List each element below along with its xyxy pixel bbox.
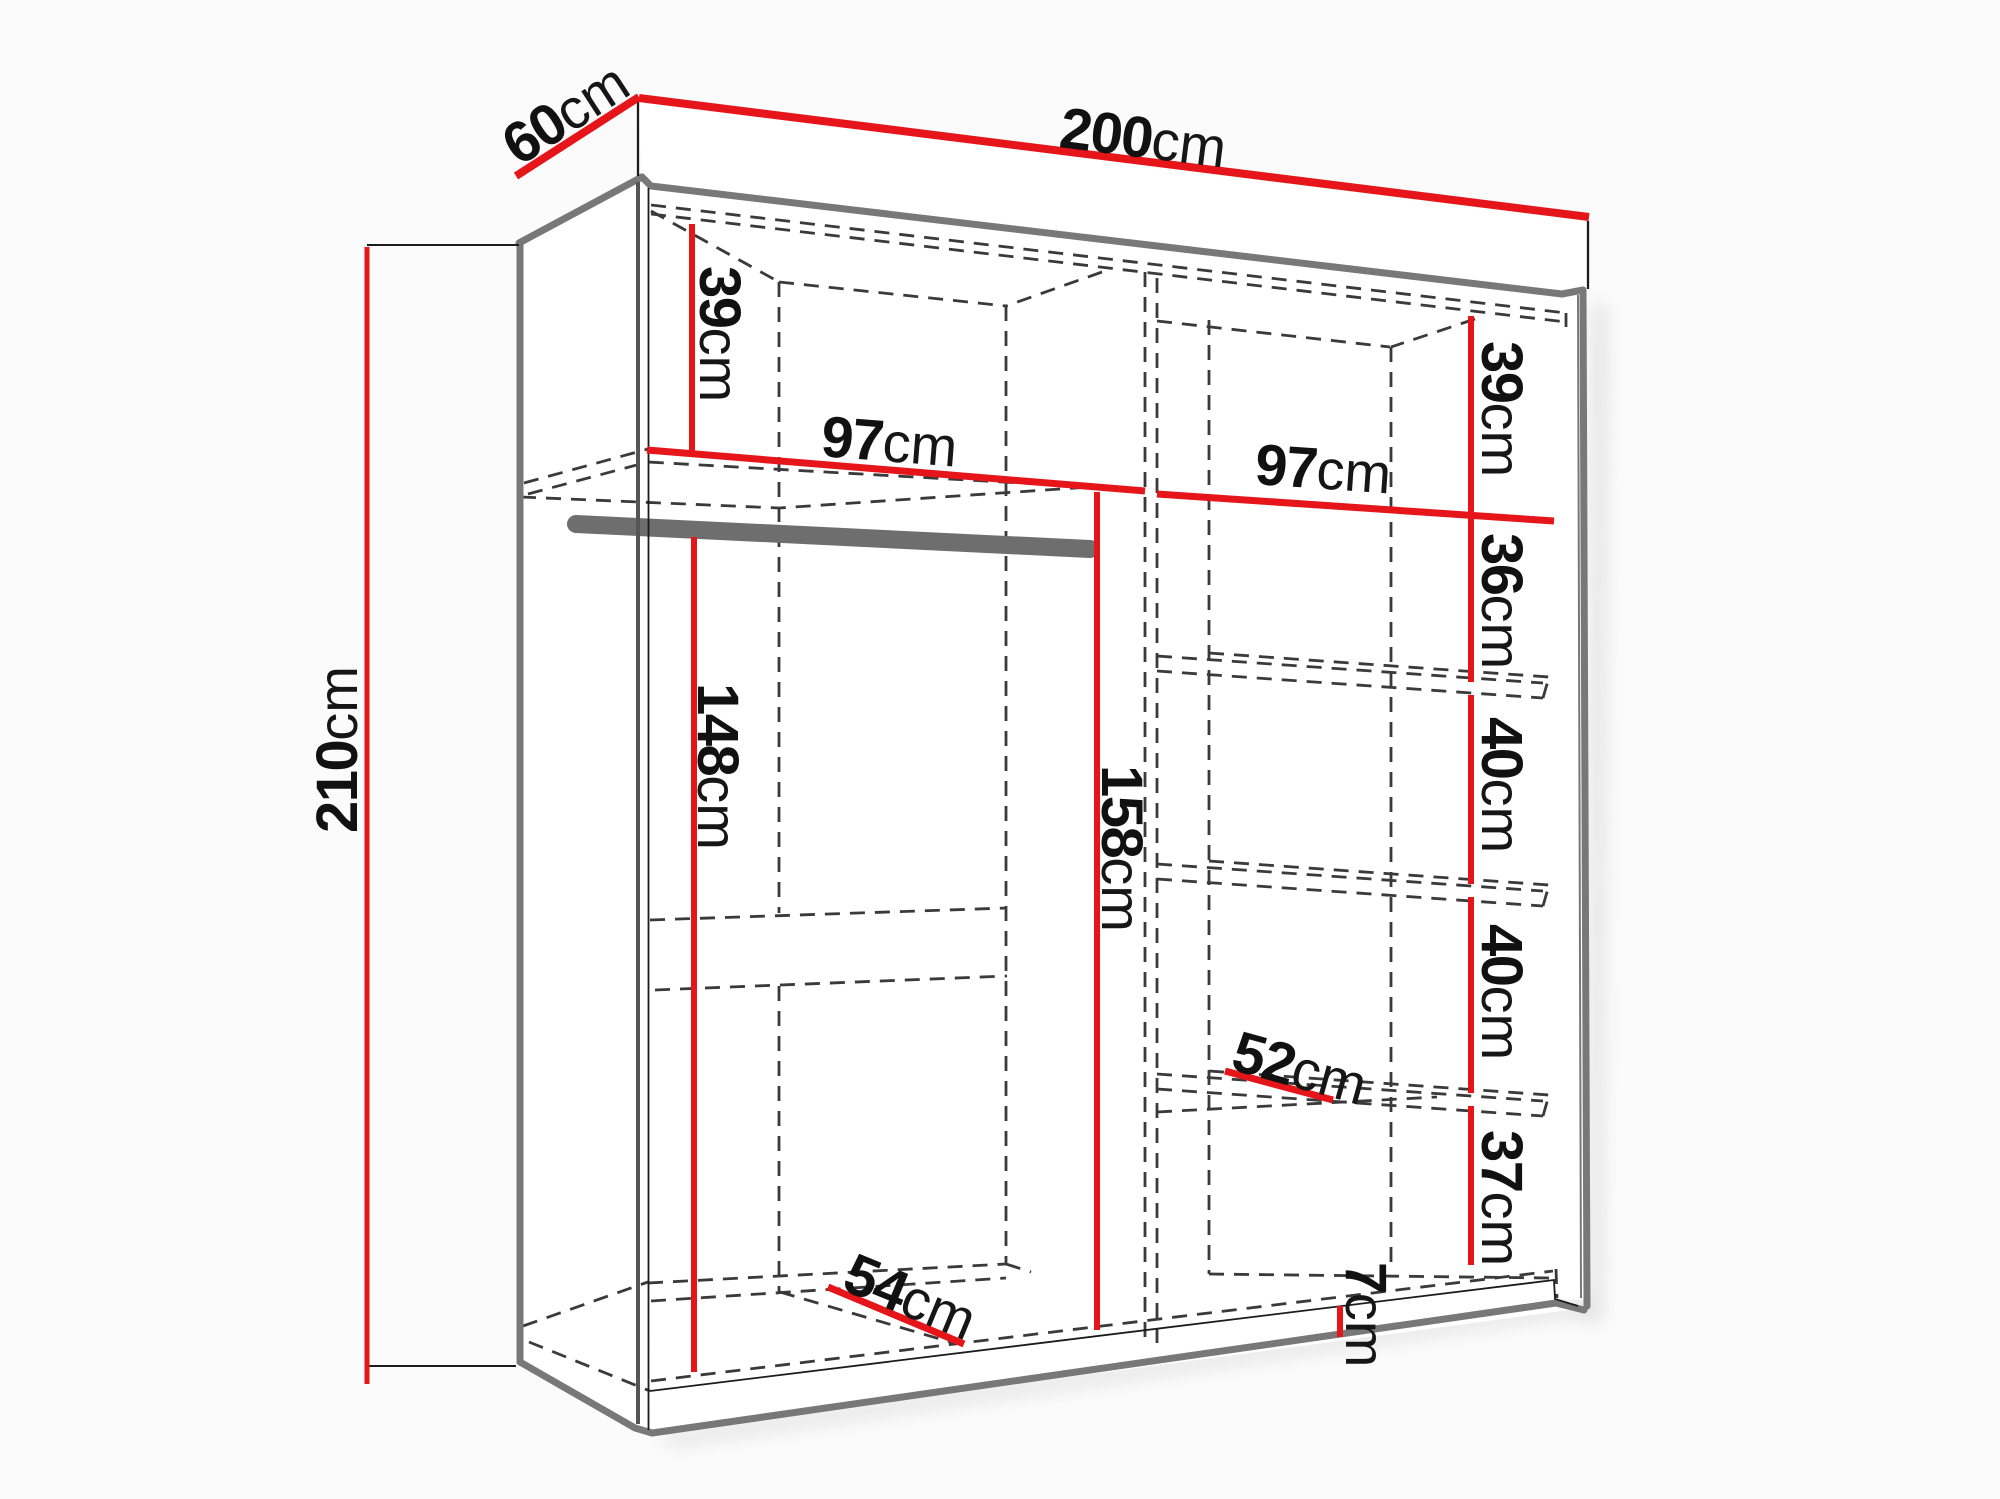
svg-text:158cm: 158cm (1089, 765, 1154, 932)
svg-text:7cm: 7cm (1333, 1262, 1398, 1367)
svg-text:37cm: 37cm (1469, 1130, 1534, 1266)
svg-text:148cm: 148cm (685, 683, 750, 850)
svg-text:40cm: 40cm (1469, 924, 1534, 1060)
svg-text:36cm: 36cm (1469, 533, 1534, 669)
svg-text:39cm: 39cm (687, 266, 752, 402)
svg-text:39cm: 39cm (1469, 341, 1534, 477)
svg-text:210cm: 210cm (305, 666, 370, 833)
svg-text:97cm: 97cm (819, 404, 960, 479)
svg-text:97cm: 97cm (1253, 432, 1393, 506)
svg-text:40cm: 40cm (1469, 717, 1534, 853)
